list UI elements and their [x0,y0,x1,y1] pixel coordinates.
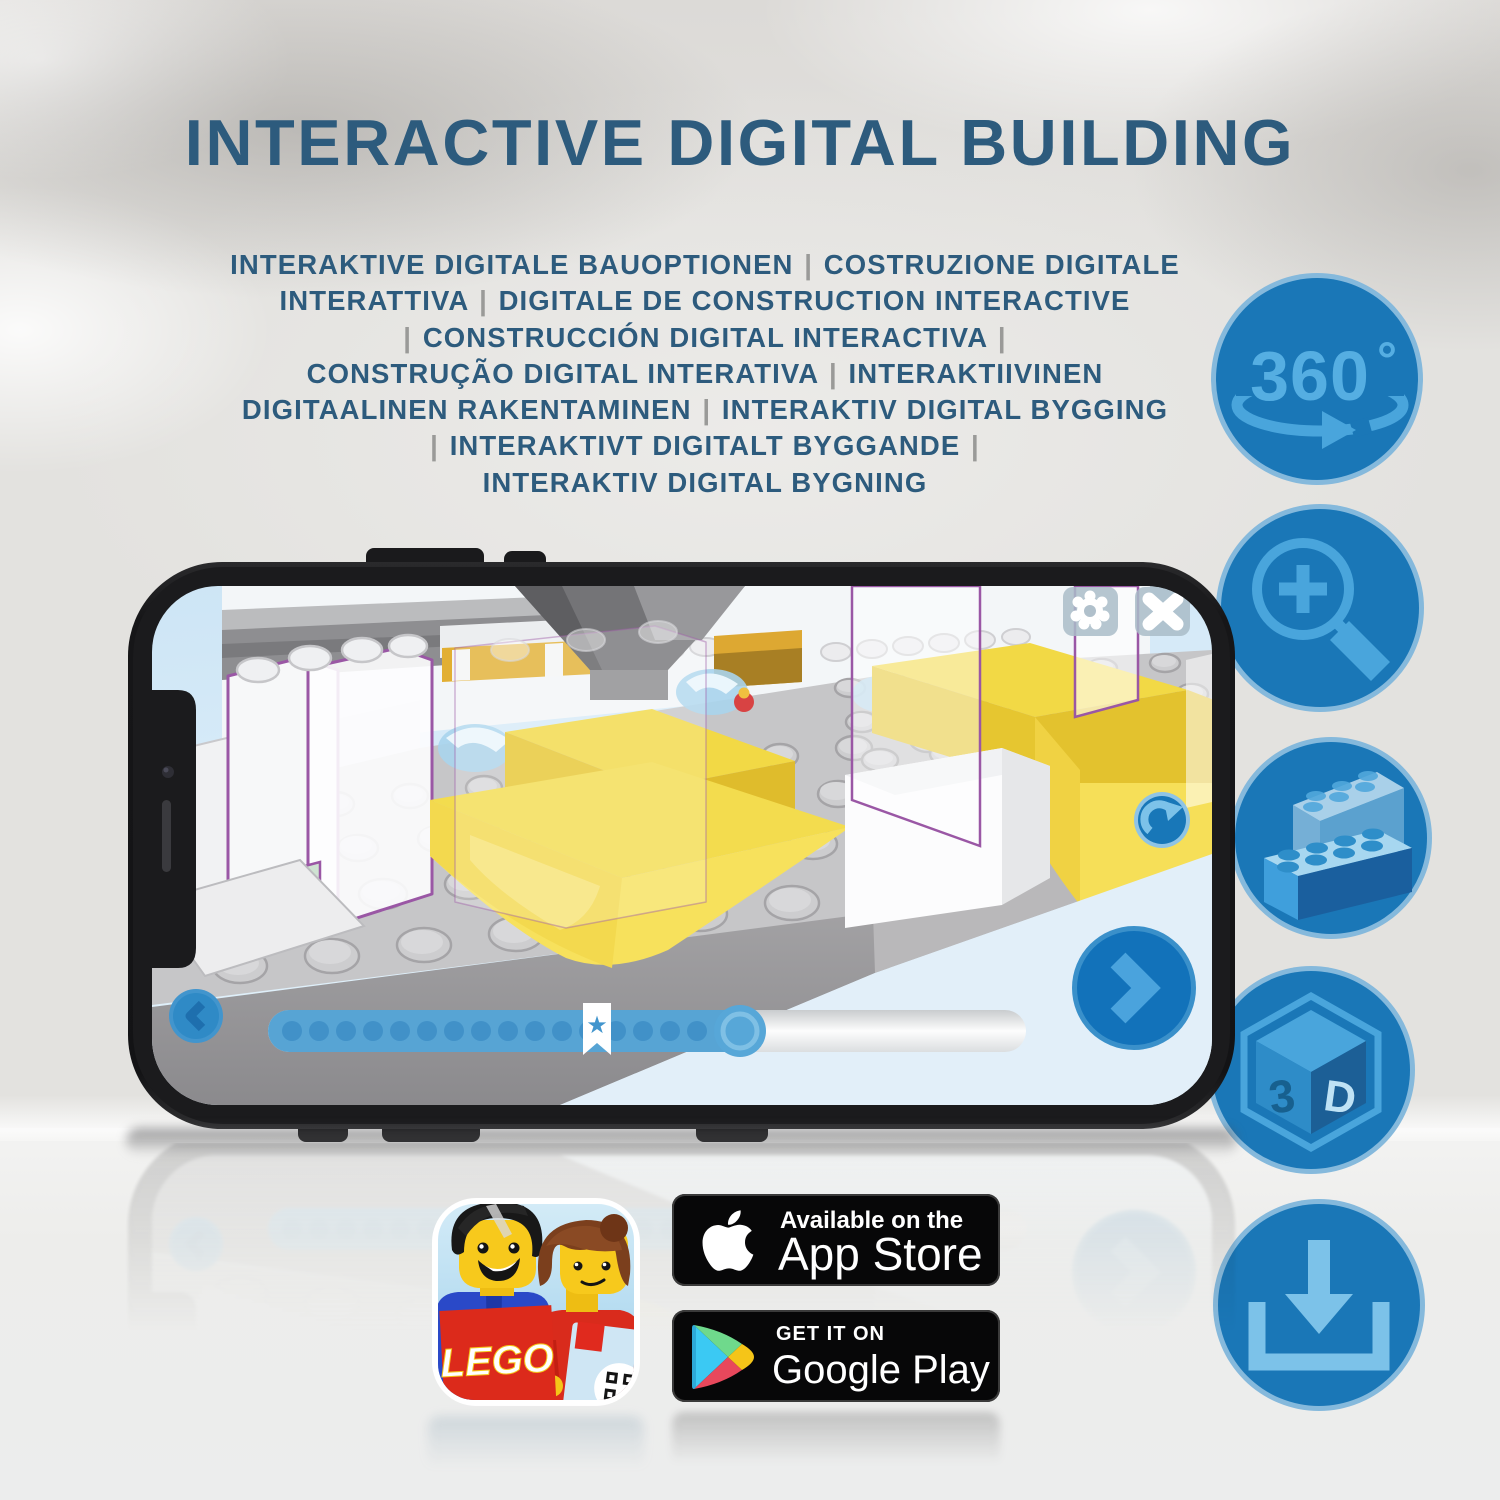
svg-text:★: ★ [586,1012,608,1039]
svg-text:°: ° [1377,332,1397,388]
svg-text:App Store: App Store [778,1228,983,1280]
svg-text:360: 360 [1250,337,1370,415]
svg-text:GET IT ON: GET IT ON [776,1323,885,1345]
svg-text:Google Play: Google Play [772,1348,990,1392]
svg-text:D: D [1321,1071,1359,1124]
svg-text:LEGO: LEGO [439,1336,554,1386]
